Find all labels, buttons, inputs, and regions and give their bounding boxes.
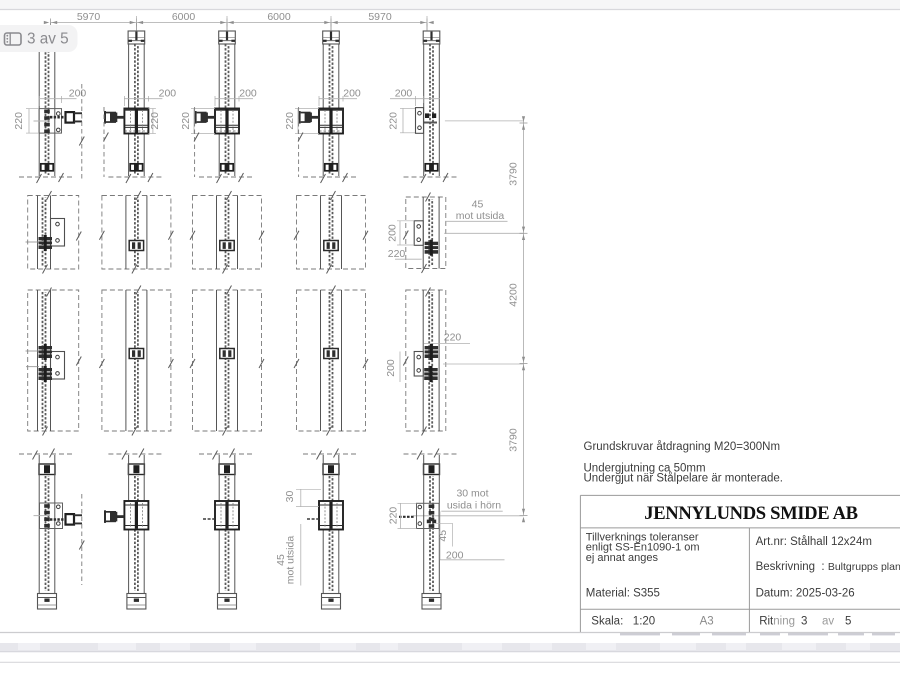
svg-text:200: 200 <box>239 88 257 100</box>
svg-text:JENNYLUNDS SMIDE AB: JENNYLUNDS SMIDE AB <box>644 503 857 524</box>
svg-text:3790: 3790 <box>508 428 520 452</box>
svg-text:Material: S355: Material: S355 <box>586 588 660 600</box>
svg-text:45: 45 <box>472 199 484 211</box>
svg-text:3: 3 <box>801 616 807 628</box>
svg-text:Beskrivning : Bultgrupps plan: Beskrivning : Bultgrupps plan <box>756 561 900 573</box>
svg-text:5970: 5970 <box>77 11 101 23</box>
svg-text:220: 220 <box>444 332 462 344</box>
svg-text:220: 220 <box>388 248 406 260</box>
svg-text:200: 200 <box>387 224 399 242</box>
svg-text:Ritning: Ritning <box>759 616 795 628</box>
svg-text:200: 200 <box>69 88 87 100</box>
svg-text:Art.nr: Stålhall 12x24m: Art.nr: Stålhall 12x24m <box>756 536 872 548</box>
svg-text:30 mot: 30 mot <box>456 487 488 499</box>
svg-text:av: av <box>822 616 834 628</box>
svg-text:Grundskruvar åtdragning M20=30: Grundskruvar åtdragning M20=300Nm <box>584 441 781 453</box>
svg-text:4200: 4200 <box>508 283 520 307</box>
svg-text:3790: 3790 <box>508 162 520 186</box>
svg-text:220: 220 <box>149 112 161 130</box>
svg-text:45: 45 <box>437 530 449 542</box>
svg-text:220: 220 <box>284 112 296 130</box>
svg-text:A3: A3 <box>700 616 714 628</box>
svg-text:Datum: 2025-03-26: Datum: 2025-03-26 <box>756 588 855 600</box>
svg-text:5970: 5970 <box>368 11 392 23</box>
svg-text:220: 220 <box>180 112 192 130</box>
svg-text:6000: 6000 <box>267 11 291 23</box>
svg-text:Skala:: Skala: <box>591 616 623 628</box>
svg-text:30: 30 <box>284 491 296 503</box>
svg-text:200: 200 <box>385 359 397 377</box>
svg-text:ej annat anges: ej annat anges <box>586 552 659 564</box>
svg-text:1:20: 1:20 <box>633 616 655 628</box>
svg-text:6000: 6000 <box>172 11 196 23</box>
svg-text:mot utsida: mot utsida <box>456 210 505 222</box>
svg-text:3 av 5: 3 av 5 <box>27 31 69 48</box>
svg-text:220: 220 <box>388 507 400 525</box>
svg-text:Undergjut när Stålpelare är mo: Undergjut när Stålpelare är monterade. <box>584 473 783 485</box>
svg-text:mot utsida: mot utsida <box>285 536 297 585</box>
svg-text:usida i hörn: usida i hörn <box>447 500 501 512</box>
svg-text:5: 5 <box>845 616 851 628</box>
svg-text:200: 200 <box>343 88 361 100</box>
svg-text:220: 220 <box>13 112 25 130</box>
svg-text:220: 220 <box>388 112 400 130</box>
svg-text:200: 200 <box>159 88 177 100</box>
svg-text:200: 200 <box>395 88 413 100</box>
